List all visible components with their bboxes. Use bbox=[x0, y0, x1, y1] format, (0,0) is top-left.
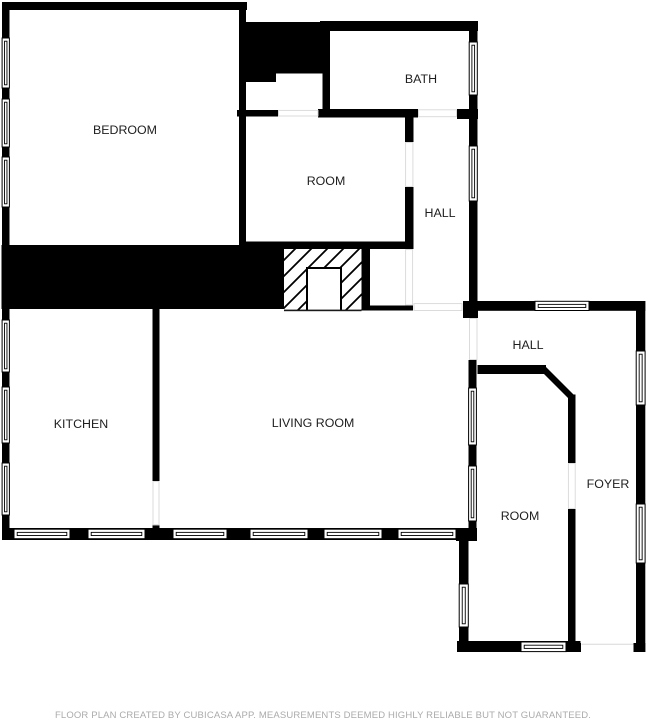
svg-text:LIVING ROOM: LIVING ROOM bbox=[272, 416, 355, 430]
svg-text:ROOM: ROOM bbox=[307, 174, 346, 188]
svg-text:FOYER: FOYER bbox=[587, 477, 630, 491]
svg-text:KITCHEN: KITCHEN bbox=[54, 417, 108, 431]
svg-text:BEDROOM: BEDROOM bbox=[93, 123, 157, 137]
svg-text:FLOOR PLAN CREATED BY CUBICASA: FLOOR PLAN CREATED BY CUBICASA APP. MEAS… bbox=[55, 710, 591, 721]
svg-text:HALL: HALL bbox=[425, 206, 456, 220]
svg-text:HALL: HALL bbox=[513, 338, 544, 352]
svg-text:BATH: BATH bbox=[405, 72, 437, 86]
svg-text:ROOM: ROOM bbox=[501, 509, 540, 523]
